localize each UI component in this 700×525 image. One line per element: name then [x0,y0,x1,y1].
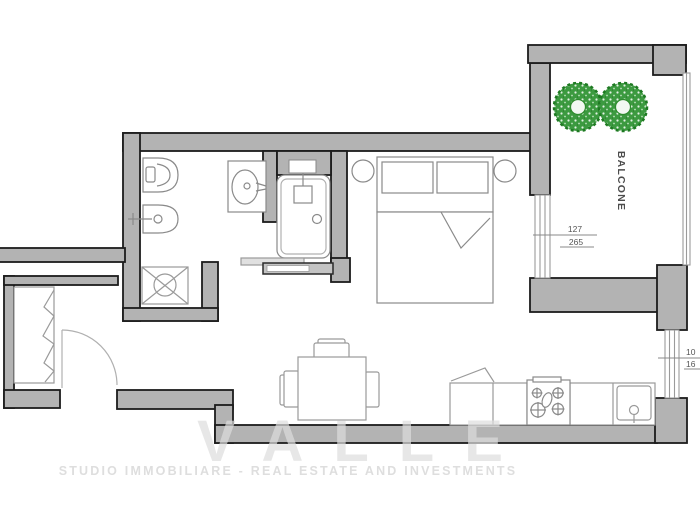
watermark-tagline: STUDIO IMMOBILIARE - REAL ESTATE AND INV… [59,464,518,478]
pillow-left-icon [382,162,433,193]
cooktop-icon [527,377,570,425]
wall-bathroom-right [331,151,347,261]
wall-balcony-bottom [530,278,660,312]
entry-door-arc-icon [62,330,117,388]
living-dining [280,339,379,420]
wall-balcony-top-corner [653,45,686,75]
dim-kitchen-bottom: 16 [686,359,696,369]
wall-shower-niche-bottom [123,308,218,321]
balcony-railing-icon [683,73,690,265]
balcony: BALCONE [554,83,647,211]
entry [14,287,117,388]
chair-left-icon [280,371,299,407]
tree-icon-right [599,83,647,131]
bedroom [352,157,516,303]
bathtub-icon [277,173,330,258]
tub-back-inset [289,160,316,173]
wall-pillar-mid-right [657,265,687,330]
floor-plan-drawing: 127 265 10 16 BALCONE [0,0,700,525]
wardrobe-icon [14,287,54,383]
watermark: VALLE VALLE STUDIO IMMOBILIARE - REAL ES… [59,409,533,478]
wall-bathroom-left [123,133,140,321]
wall-pillar-bottom-right [655,398,687,443]
balcony-label: BALCONE [615,151,627,211]
kitchen-window-icon [665,330,679,398]
double-bed-icon [377,157,493,303]
shower-tray-icon [142,267,188,304]
kitchen-sink-icon [617,386,651,423]
nightstand-left-icon [352,160,374,182]
dim-balcony-top: 127 [568,224,582,234]
chair-top-icon [314,339,349,359]
toilet-icon [143,158,178,192]
sliding-door-icon [241,258,333,274]
bathroom [128,158,333,304]
wall-bathroom-corner [331,258,350,282]
tree-icon-left [554,83,602,131]
wall-entry-left [4,276,14,408]
wall-top-main [123,133,536,151]
balcony-window-icon [535,195,550,278]
nightstand-right-icon [494,160,516,182]
counter-flap-icon [451,368,494,382]
chair-right-icon [365,372,379,407]
dim-kitchen-top: 10 [686,347,696,357]
wall-left-stub [0,248,125,262]
pillow-right-icon [437,162,488,193]
wall-entry-top [4,276,118,285]
washbasin-icon [228,161,266,212]
floor-plan: 127 265 10 16 BALCONE [0,0,700,525]
wall-balcony-divider [530,63,550,195]
dim-balcony-bottom: 265 [569,237,583,247]
wall-entry-bottom [4,390,60,408]
